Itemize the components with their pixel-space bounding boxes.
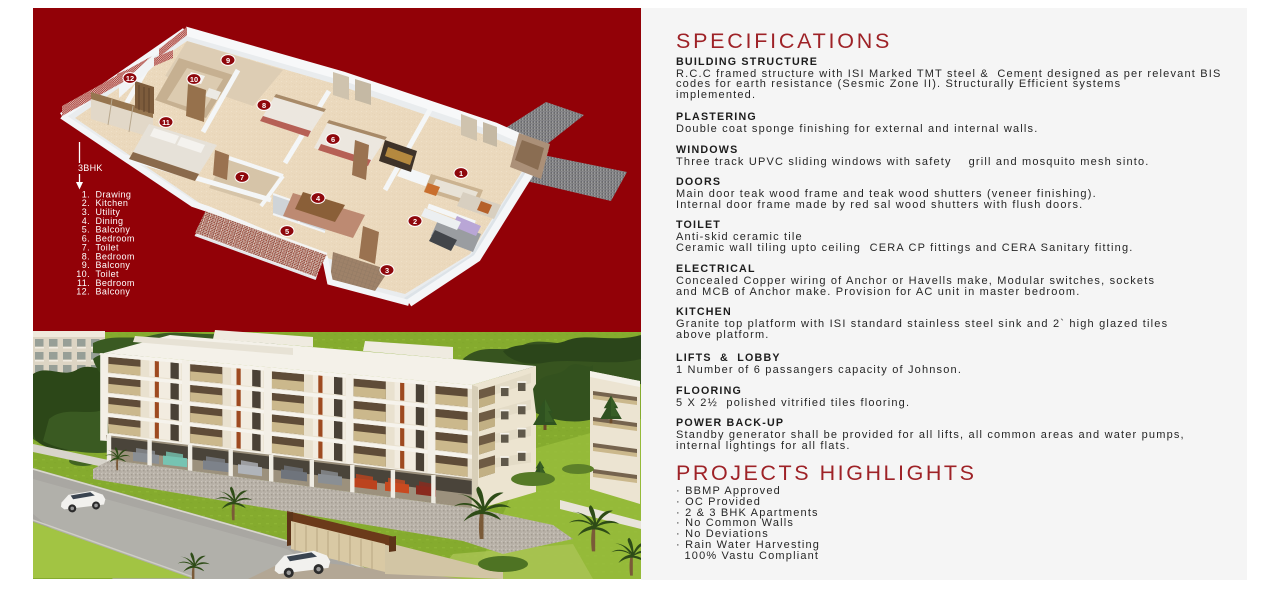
svg-text:9: 9 [226,56,230,65]
svg-text:7: 7 [240,173,244,182]
svg-text:8: 8 [262,101,266,110]
svg-text:3BHK: 3BHK [78,163,103,173]
svg-text:12: 12 [126,74,134,83]
svg-text:3: 3 [385,266,389,275]
svg-text:Balcony: Balcony [96,287,131,297]
svg-text:2: 2 [413,217,417,226]
svg-text:1: 1 [459,169,463,178]
svg-text:5: 5 [285,227,289,236]
svg-text:12.: 12. [76,287,90,297]
svg-text:6: 6 [331,135,335,144]
svg-text:10: 10 [190,75,198,84]
svg-text:11: 11 [162,118,170,127]
